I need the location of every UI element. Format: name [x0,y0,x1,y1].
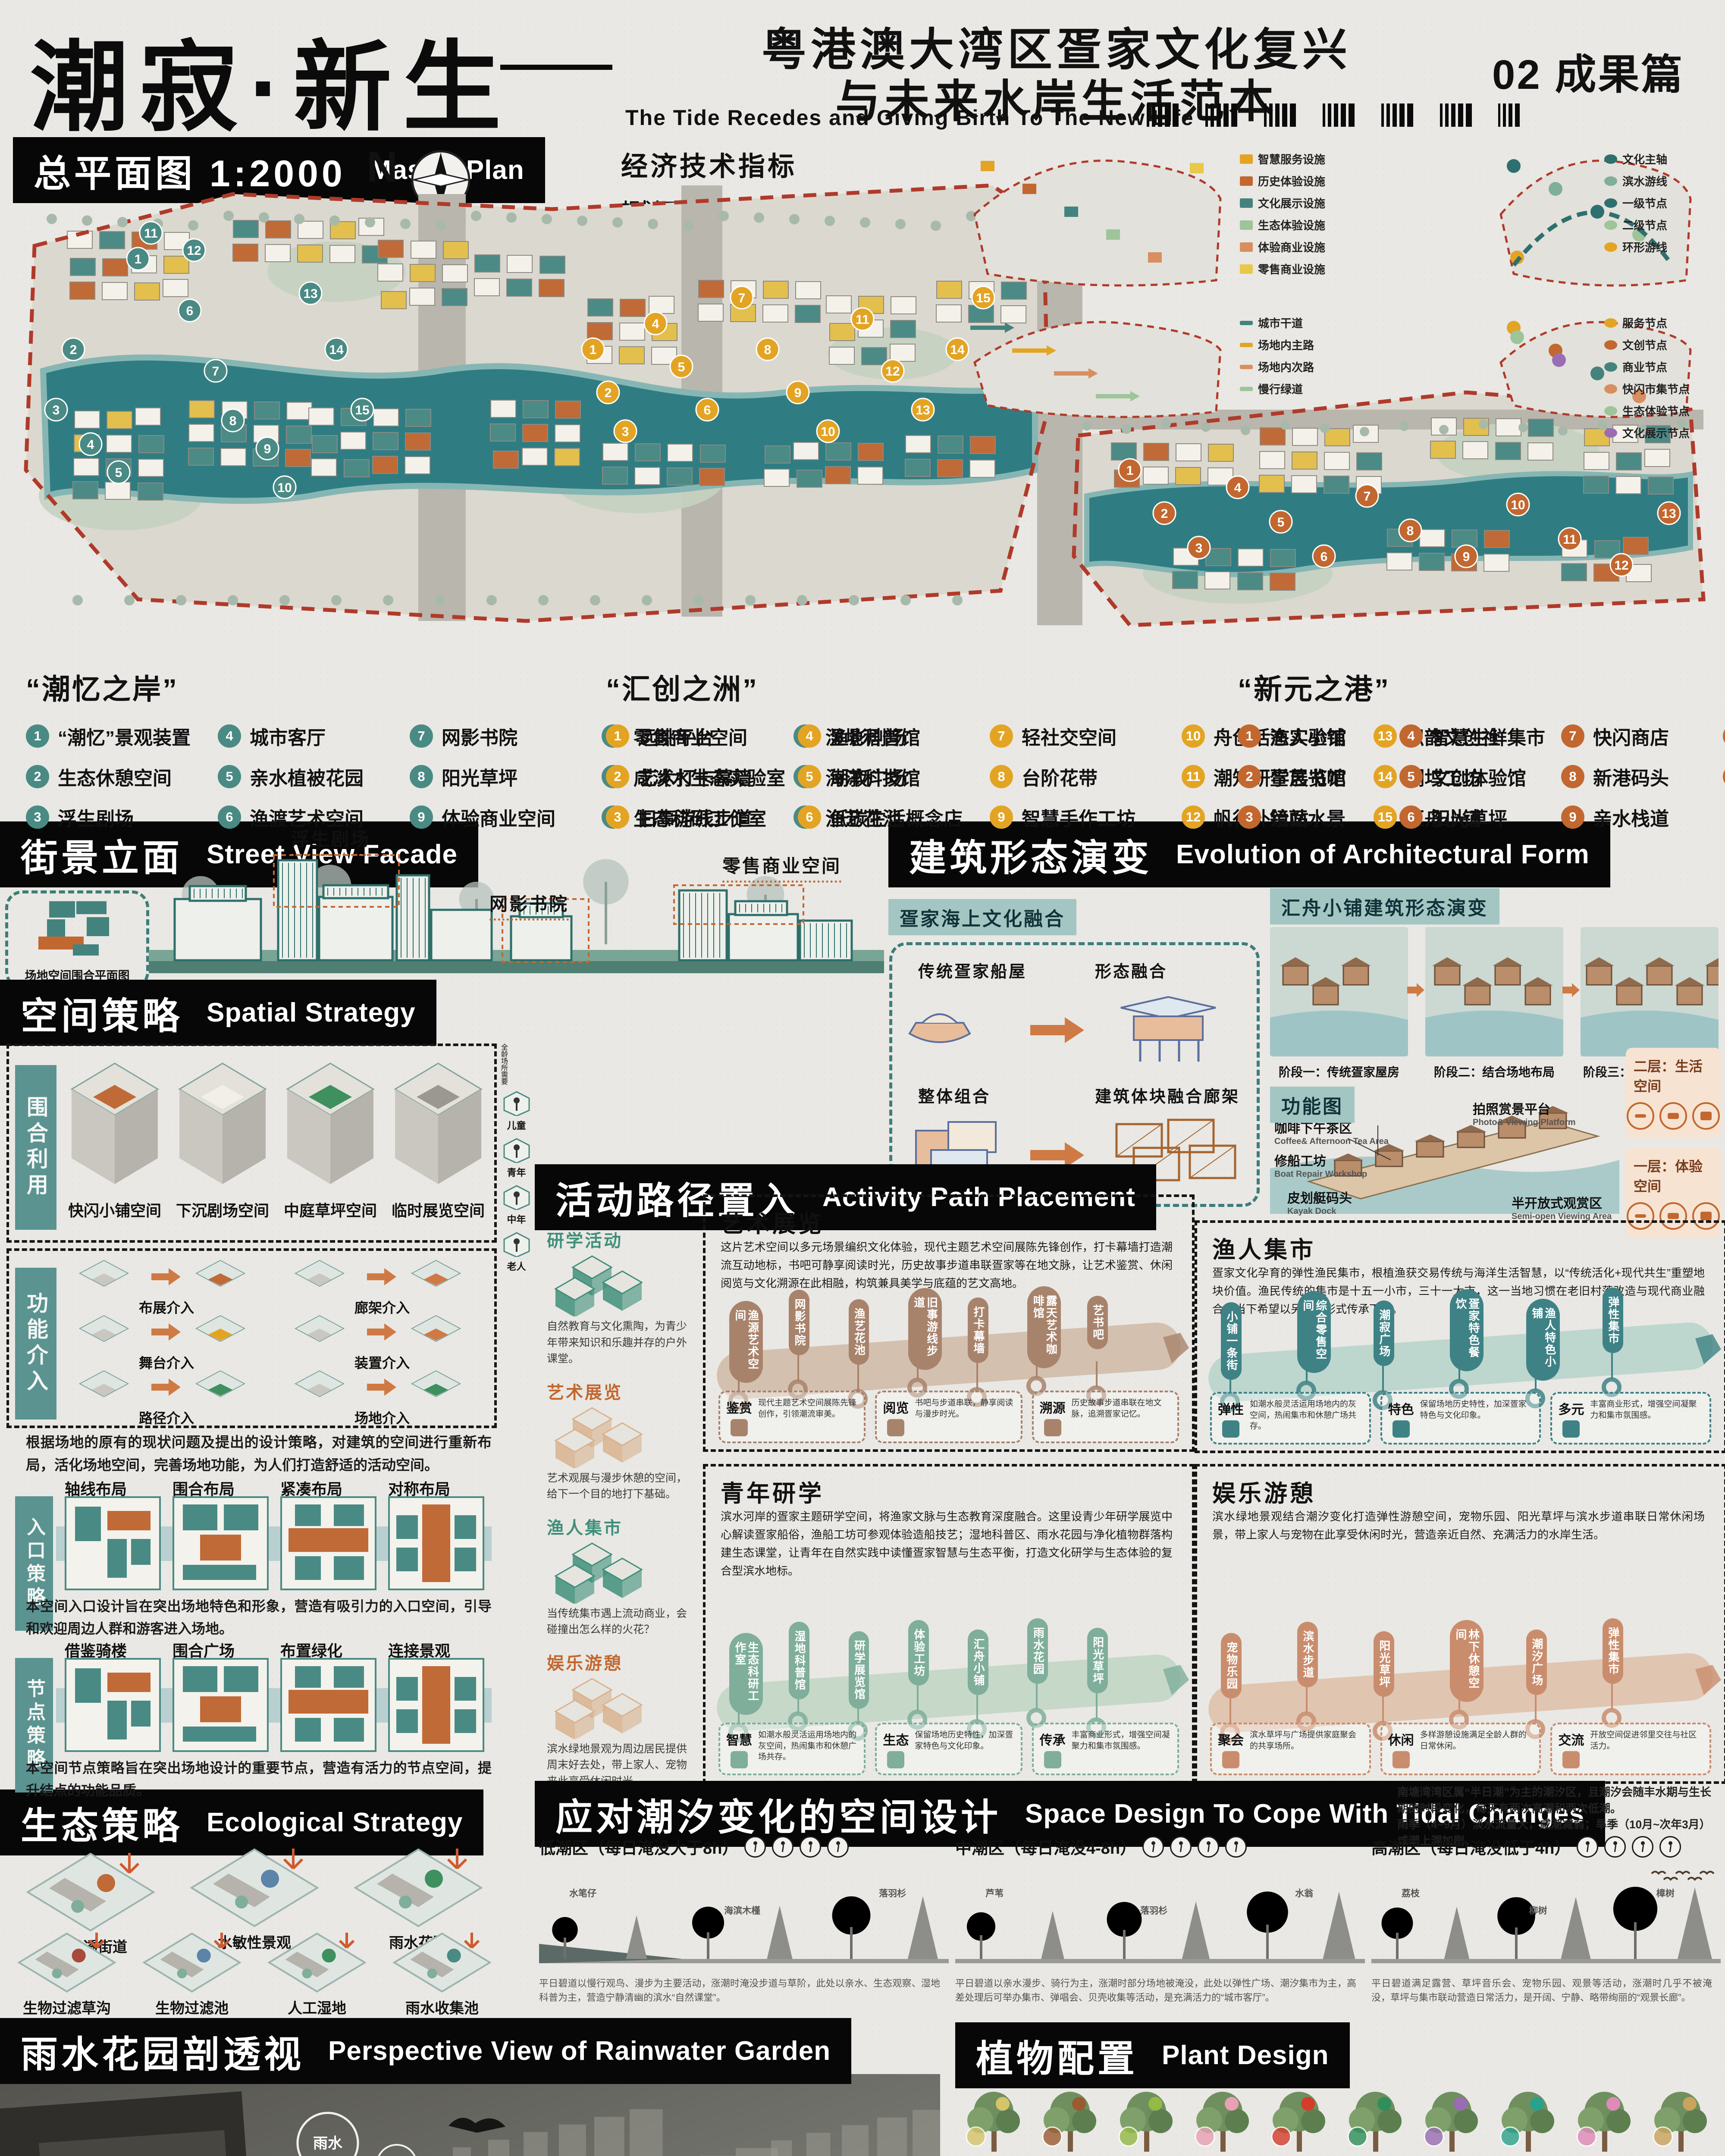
function-caption: 场地介入 [281,1407,483,1427]
legend-number: 5 [218,765,241,788]
activity-sidebar-item: 渔人集市当传统集市遇上流动商业，会碰撞出怎么样的火花？ [547,1514,696,1638]
activity-badge-icon [1393,1420,1410,1438]
tidal-zone-header: 中潮区（每日淹没4-8h） [955,1835,1365,1858]
evolution-floors: 二层：生活空间一层：体验空间 [1626,1048,1721,1248]
minimap-legend-node-analysis: 服务节点文创节点商业节点快闪市集节点生态体验节点文化展示节点 [1604,315,1690,447]
activity-badge-left: 休闲 [1388,1730,1414,1768]
facade-plan-drawing [8,893,146,962]
tidal-tree-label: 落羽杉 [1140,1904,1167,1917]
age-group-label: 老人 [498,1259,535,1273]
svg-text:4: 4 [652,317,659,331]
legend-entry-label: 快闪商店 [1593,722,1669,750]
activity-pill: 弹性集市 [1603,1288,1623,1353]
enclosure-diagram: 中庭草坪空间 [281,1059,380,1221]
activity-pill: 滨水步道 [1297,1622,1318,1687]
barcode-bar [1440,103,1443,127]
activity-badge-desc: 丰富商业形式，增强空间凝聚力和集市氛围感。 [1590,1399,1703,1421]
callout-en: Kayak Dock [1287,1206,1352,1216]
legend-item: 生态体验节点 [1604,403,1690,419]
activity-badge-name: 阅览 [883,1398,909,1416]
legend-entry: 8阳光草坪 [410,763,602,790]
legend-entry: 3浮生剧场 [26,803,218,831]
evolution-callout: 半开放式观赏区Semi-open Viewing Area [1512,1193,1612,1222]
floor-icon [1659,1102,1687,1130]
zone-title: “汇创之洲” [606,666,1184,708]
plant-tree-columns: 海滨木槿叶片：1月-12月叶片全落花期：7月初-10月初水分：耐海水漫淹落羽杉叶… [955,2085,1721,2156]
activity-type-icon [1170,1836,1192,1858]
strategy-diagram [388,1658,484,1752]
zone-items: 1渔人小铺2疍艺书吧3镜面水景4智慧生鲜集市5文创体验馆6阳光草坪7快闪商店8新… [1238,722,1721,869]
barcode-bar [1211,103,1214,127]
enclosure-diagram: 下沉剧场空间 [173,1059,272,1221]
svg-text:1: 1 [135,252,142,266]
legend-entry-label: 渔人小铺 [1270,722,1345,750]
activity-badge: 特色保留场地历史特性，加深疍家特色与文化印象。 [1380,1392,1541,1445]
activity-pill: 艺书吧 [1087,1296,1108,1349]
tidal-tree-label: 水翁 [1295,1887,1313,1899]
activity-badge-desc: 如潮水般灵活运用场地内的灰空间，热闹集市和休憩广场共存。 [758,1730,858,1763]
legend-item: 快闪市集节点 [1604,381,1690,397]
evolution-callout: 皮划艇码头Kayak Dock [1287,1188,1352,1216]
activity-type-icon [827,1836,849,1858]
legend-item: 文化展示节点 [1604,425,1690,441]
plants-badge: 植物配置 Plant Design [955,2022,1350,2088]
activity-panel-1: 艺术展览这片艺术空间以多元场景编织文化体验，现代主题艺术空间展陈先锋创作，打卡幕… [703,1194,1195,1452]
evolution-row-label: 传统疍家船屋 [918,958,1027,982]
ecology-caption: 雨水收集池 [392,1996,492,2018]
ecology-diagram-4: 生物过滤草沟 [17,1932,116,2018]
tidal-zone-name: 高潮区（每日淹没低于4h） [1371,1835,1571,1858]
zone-title: “新元之港” [1238,666,1721,708]
function-diagram: 廊架介入 [281,1259,483,1317]
activity-panel-2: 渔人集市疍家文化孕育的弹性渔民集市，根植渔获交易传统与海洋生活智慧，以“传统活化… [1195,1220,1725,1453]
activity-badge-desc: 如潮水般灵活运用场地内的灰空间，热闹集市和休憩广场共存。 [1250,1399,1363,1432]
legend-entry-label: 渔影剧场 [830,722,906,750]
svg-text:2: 2 [1161,507,1168,521]
activity-badge-left: 交流 [1558,1730,1584,1768]
tidal-zone-caption: 平日碧道以亲水漫步、骑行为主，涨潮时部分场地被淹没，此处以弹性广场、潮汐集市为主… [955,1976,1356,2005]
legend-label: 快闪市集节点 [1622,381,1690,397]
function-diagram: 舞台介入 [65,1314,268,1372]
barcode-bar [1407,103,1413,127]
barcode-bar [1205,103,1208,127]
activity-sidebar-label: 研学活动 [547,1227,696,1252]
plant-name: 麻楝 [1659,2154,1701,2156]
legend-entry: 5文创体验馆 [1399,763,1561,790]
legend-label: 场地内主路 [1258,337,1314,353]
age-bar: 全龄场所需要儿童青年中年老人 [498,1044,535,1238]
activity-badge-icon [1562,1420,1580,1438]
callout-cn: 皮划艇码头 [1287,1188,1352,1206]
svg-text:6: 6 [1320,550,1328,564]
enclosure-diagram: 临时展览空间 [389,1059,488,1221]
svg-text:1: 1 [1126,464,1134,478]
legend-entry-label: 体验商业空间 [442,803,555,831]
activity-badge-left: 多元 [1558,1399,1584,1438]
enclosure-caption: 临时展览空间 [389,1198,488,1221]
activity-type-icon [744,1836,766,1858]
svg-text:13: 13 [916,403,930,417]
barcode-bar [1290,103,1296,127]
activity-badge-desc: 开放空间促进邻里交往与社区活力。 [1590,1730,1703,1752]
activity-badge-name: 鉴赏 [726,1398,752,1416]
activity-badge-desc: 滨水草坪与广场提供家庭聚会的共享场所。 [1250,1730,1363,1752]
zone-items: 1“潮忆”景观装置2生态休憩空间3浮生剧场4城市客厅5亲水植被花园6渔渡艺术空间… [26,722,604,869]
raingarden-badge: 雨水花园剖透视 Perspective View of Rainwater Ga… [0,2018,851,2084]
legend-number: 3 [26,805,49,829]
activity-pill: 综合零售空间 [1297,1291,1331,1373]
legend-item: 文化展示设施 [1240,195,1325,211]
legend-entry: 3旧事游线步道 [606,803,798,831]
callout-en: Photo& Viewing Platform [1473,1118,1576,1128]
activity-pill: 宠物乐园 [1221,1633,1242,1698]
activity-badge-icon [1562,1751,1580,1768]
activity-panel-title: 渔人集市 [1212,1231,1316,1265]
legend-number: 2 [1238,765,1261,788]
activity-panel-illustration: 宠物乐园滨水步道阳光草坪林下休憩空间潮汐广场弹性集市 [1208,1639,1713,1725]
floor-icon [1692,1102,1720,1130]
activity-sidebar-label: 渔人集市 [547,1514,696,1539]
legend-label: 商业节点 [1622,359,1667,375]
activity-sidebar-item: 娱乐游憩滨水绿地景观为周边居民提供周末好去处，带上家人、宠物来此享受休闲时光。 [547,1649,696,1790]
raingarden-view: 雨水蓄水观鸟亭滨水陆域生态系统Coastal terrestrial ecosy… [0,2074,940,2156]
activity-badge: 休闲多样游憩设施满足全龄人群的日常休闲。 [1380,1723,1541,1775]
age-group-label: 青年 [498,1165,535,1179]
activity-pill: 体验工坊 [908,1620,929,1686]
activity-badge: 溯源历史故事步道串联在地文脉，追溯疍家记忆。 [1032,1391,1179,1443]
plant-tree-7: 大花紫薇叶片：10月-11月落叶花期：5-7月水分：较为耐旱 [1413,2085,1490,2156]
legend-entry-label: 阳光草坪 [1431,803,1507,831]
ecology-diagram-6: 人工湿地 [267,1932,367,2018]
legend-swatch-icon [1240,264,1253,274]
activity-pill-stem [1036,1352,1038,1378]
legend-number: 12 [1182,805,1205,829]
activity-panel-text: 滨水绿地景观结合潮汐变化打造弹性游憩空间，宠物乐园、阳光草坪与滨水步道串联日常休… [1212,1507,1705,1544]
legend-swatch-icon [1240,387,1253,391]
zone-items: 1远眺平台2艺术打卡幕墙3旧事游线步道4渔影剧场5潮寂广场6低碳生活概念店7轻社… [606,722,1184,869]
floor-icon-glyph [1668,1113,1679,1119]
activity-pill-stem [1229,1368,1231,1394]
activity-panel-text: 这片艺术空间以多元场景编织文化体验，现代主题艺术空间展陈先锋创作，打卡幕墙打造潮… [721,1238,1173,1292]
activity-badge-left: 溯源 [1040,1398,1066,1436]
tidal-zone-caption: 平日碧道以慢行观鸟、漫步为主要活动，涨潮时淹没步道与草阶，此处以亲水、生态观察、… [539,1976,940,2005]
activity-pill-stem [1611,1684,1613,1710]
ecology-caption: 人工湿地 [267,1996,367,2018]
activity-type-icon [1225,1836,1247,1858]
legend-swatch-icon [1604,198,1617,208]
activity-type-icon [1604,1836,1626,1858]
activity-badge-left: 智慧 [726,1730,752,1768]
legend-label: 一级节点 [1622,195,1667,211]
legend-label: 二级节点 [1622,217,1667,233]
activity-pill-stem [738,1366,740,1392]
zone-title: “潮忆之岸” [26,666,604,708]
svg-text:11: 11 [1563,533,1577,547]
minimap-facility-analysis [962,144,1233,300]
legend-swatch-icon [1604,406,1617,416]
plant-tree-9: 宫粉紫荆叶片：2-5月落叶花期：1-3月水分：耐干旱 [1566,2085,1642,2156]
svg-text:7: 7 [1364,489,1371,504]
svg-text:9: 9 [264,442,271,456]
evolution-stage-caption: 阶段二：结合场地布局 [1425,1063,1563,1080]
tidal-tree-label: 芦苇 [985,1887,1004,1899]
activity-badges: 聚会滨水草坪与广场提供家庭聚会的共享场所。休闲多样游憩设施满足全龄人群的日常休闲… [1210,1723,1711,1775]
svg-text:15: 15 [355,403,369,417]
barcode-bar [1498,103,1500,127]
barcode-icon [1138,103,1703,127]
zone-legend-1: “潮忆之岸”1“潮忆”景观装置2生态休憩空间3浮生剧场4城市客厅5亲水植被花园6… [26,666,604,869]
activity-pill-stem [857,1697,859,1723]
legend-entry-label: 亲水植被花园 [250,763,364,790]
plant-tree-6: 王棕叶片：常绿果期：10月水分：耐旱耐湿 [1337,2085,1413,2156]
legend-number: 9 [410,805,433,829]
activity-pill-stem [1458,1686,1460,1711]
legend-entry-label: 低碳生活概念店 [830,803,963,831]
svg-text:3: 3 [53,403,60,417]
evolution-row-label: 整体组合 [918,1083,991,1107]
activity-badge-left: 传承 [1040,1730,1066,1768]
svg-text:9: 9 [1463,550,1470,564]
barcode-bar [1436,103,1437,127]
legend-label: 文化主轴 [1622,151,1667,167]
title-divider [500,65,612,70]
barcode-bar [1399,103,1405,127]
legend-entry-label: 镜面水景 [1270,803,1345,831]
spatial-enclosure-box: 快闪小铺空间下沉剧场空间中庭草坪空间临时展览空间 [6,1044,497,1243]
legend-swatch-icon [1604,340,1617,350]
barcode-bar [1249,103,1257,127]
strategy-diagram [280,1496,376,1590]
legend-swatch-icon [1240,176,1253,186]
tidal-zone-name: 中潮区（每日淹没4-8h） [955,1835,1136,1858]
edition-label: 02 成果篇 [1492,41,1684,101]
legend-entry-label: 新港码头 [1593,763,1669,790]
legend-item: 体验商业设施 [1240,239,1325,255]
plants-badge-cn: 植物配置 [976,2028,1138,2082]
legend-entry: 3镜面水景 [1238,803,1399,831]
legend-swatch-icon [1240,343,1253,347]
barcode-bar [1474,103,1481,127]
legend-entry-label: 亲水栈道 [1593,803,1669,831]
legend-entry: 4城市客厅 [218,722,410,750]
svg-text:2: 2 [605,386,612,400]
activity-pill: 潮寂广场 [1374,1300,1394,1366]
strategy-diagram [172,1496,269,1590]
legend-entry-label: 台阶花带 [1022,763,1098,790]
legend-number: 11 [1182,765,1205,788]
activity-badge-name: 智慧 [726,1730,752,1749]
legend-number: 6 [798,805,821,829]
function-diagram: 场地介入 [281,1369,483,1427]
ecology-badge-en: Ecological Strategy [207,1807,463,1838]
legend-item: 环形游线 [1604,239,1667,255]
activity-badge-left: 阅览 [883,1398,909,1436]
activity-pill-stem [1096,1693,1098,1719]
plant-tree-10: 麻楝叶片：常绿花期：4-5月水分：耐干旱 [1642,2085,1719,2156]
plant-tree-4: 栾树叶片：11月-次年2月落叶花期：6-7月水分：耐干旱 [1184,2085,1261,2156]
activity-badge-name: 弹性 [1218,1399,1244,1418]
svg-text:雨水: 雨水 [313,2135,343,2152]
barcode-bar [1165,103,1170,127]
evolution-floor-badge: 二层：生活空间 [1626,1048,1721,1138]
legend-item: 零售商业设施 [1240,261,1325,277]
activity-badge-left: 聚会 [1218,1730,1244,1768]
activity-badge-desc: 保留场地历史特性，加深疍家特色与文化印象。 [1420,1399,1534,1421]
legend-swatch-icon [1240,154,1253,164]
activity-pill-stem [917,1686,919,1711]
spatial-badge: 空间策略 Spatial Strategy [0,980,436,1046]
zone-legend-2: “汇创之洲”1远眺平台2艺术打卡幕墙3旧事游线步道4渔影剧场5潮寂广场6低碳生活… [606,666,1184,869]
barcode-bar [1275,103,1280,127]
barcode-bar [1138,103,1140,127]
plant-name: 大花紫薇 [1416,2154,1486,2156]
activity-badge: 交流开放空间促进邻里交往与社区活力。 [1550,1723,1711,1775]
barcode-bar [1191,103,1198,127]
ecology-diagram-5: 生物过滤池 [142,1932,241,2018]
floor-icons [1627,1102,1720,1130]
activity-badge-desc: 现代主题艺术空间展陈先锋创作，引领潮流审美。 [758,1398,858,1420]
svg-text:14: 14 [329,343,344,357]
legend-number: 9 [1561,805,1584,829]
barcode-bar [1269,103,1273,127]
activity-pill-stem [917,1354,919,1379]
legend-entry-label: 城市客厅 [250,722,326,750]
svg-text:5: 5 [1277,515,1285,530]
minimap-legend-traffic-analysis: 城市干道场地内主路场地内次路慢行绿道 [1240,315,1314,403]
svg-text:3: 3 [1195,541,1203,555]
plants-badge-en: Plant Design [1162,2040,1329,2071]
svg-text:8: 8 [1407,524,1414,538]
strategy-diagram [65,1658,161,1752]
barcode-bar [1142,103,1144,127]
function-diagram: 路径介入 [65,1369,268,1427]
legend-entry: 9智慧手作工坊 [990,803,1182,831]
activity-type-icon [772,1836,793,1858]
barcode-bar [1318,103,1320,127]
barcode-bar [1223,103,1229,127]
legend-number: 10 [1182,724,1205,748]
legend-item: 一级节点 [1604,195,1667,211]
legend-swatch-icon [1604,318,1617,328]
legend-entry: 1远眺平台 [606,722,798,750]
legend-entry-label: 轻社交空间 [1022,722,1117,750]
legend-item: 生态体验设施 [1240,217,1325,233]
evolution-stage: 阶段二：结合场地布局 [1425,927,1563,1080]
activity-pill-stem [1611,1353,1613,1379]
legend-label: 场地内次路 [1258,359,1314,375]
tidal-zone-1: 低潮区（每日淹没大于8h）水笔仔海滨木槿落羽杉平日碧道以慢行观鸟、漫步为主要活动… [539,1835,949,2005]
activity-pill-stem [1458,1355,1460,1381]
activity-badge: 传承丰富商业形式，增强空间凝聚力和集市氛围感。 [1032,1723,1179,1775]
activity-sidebar-item: 研学活动自然教育与文化熏陶，为青少年带来知识和乐趣并存的户外课堂。 [547,1227,696,1367]
legend-label: 生态体验节点 [1622,403,1690,419]
plant-tree-1: 海滨木槿叶片：1月-12月叶片全落花期：7月初-10月初水分：耐海水漫淹 [955,2085,1032,2156]
function-caption: 路径介入 [65,1407,268,1427]
legend-swatch-icon [1240,198,1253,208]
legend-number: 6 [218,805,241,829]
svg-text:3: 3 [622,425,629,439]
svg-text:5: 5 [115,466,122,480]
tidal-tree-label: 柳树 [1529,1904,1547,1917]
svg-text:12: 12 [885,364,900,379]
legend-label: 智慧服务设施 [1258,151,1325,167]
legend-swatch-icon [1604,220,1617,230]
page-title: 潮寂·新生 [30,8,512,150]
activity-panel-illustration: 小铺一条街综合零售空间潮寂广场疍家特色餐饮渔人特色小铺弹性集市 [1208,1308,1713,1395]
tidal-zone-3: 高潮区（每日淹没低于4h）荔枝柳树樟树平日碧道满足露营、草坪音乐会、宠物乐园、观… [1371,1835,1721,2005]
strategy-diagram [280,1658,376,1752]
ecology-diagram-7: 雨水收集池 [392,1932,492,2018]
activity-sidebar-label: 艺术展览 [547,1379,696,1404]
legend-swatch-icon [1240,365,1253,369]
tidal-zone-header: 低潮区（每日淹没大于8h） [539,1835,949,1858]
spatial-mid-text: 根据场地的原有的现状问题及提出的设计策略，对建筑的空间进行重新布局，活化场地空间… [26,1431,492,1477]
activity-badge: 聚会滨水草坪与广场提供家庭聚会的共享场所。 [1210,1723,1371,1775]
activity-pill-stem [797,1687,799,1713]
zone-legend-3: “新元之港”1渔人小铺2疍艺书吧3镜面水景4智慧生鲜集市5文创体验馆6阳光草坪7… [1238,666,1721,869]
legend-number: 8 [1561,765,1584,788]
legend-number: 8 [990,765,1013,788]
legend-item: 商业节点 [1604,359,1690,375]
legend-number: 1 [26,724,49,748]
plant-tree-8: 蒲桃叶片：常绿花期：4-6月水分：喜水湿 [1490,2085,1566,2156]
floor-label: 二层：生活空间 [1634,1056,1713,1095]
activity-pill: 渔人特色小铺 [1526,1299,1560,1381]
legend-entry: 1渔人小铺 [1238,722,1399,750]
legend-number: 5 [798,765,821,788]
activity-badge-desc: 历史故事步道串联在地文脉，追溯疍家记忆。 [1072,1398,1171,1420]
evolution-chip-right: 汇舟小铺建筑形态演变 [1270,888,1499,924]
activity-badge-icon [1222,1751,1239,1768]
floor-icon-glyph [1635,1114,1646,1118]
activity-path-strip [715,1321,1182,1401]
activity-sidebar-item: 艺术展览艺术观展与漫步休憩的空间，给下一个目的地打下基础。 [547,1379,696,1503]
activity-pill: 渔源艺术空间 [729,1301,763,1383]
activity-type-icon [1659,1836,1681,1858]
age-group: 青年 [498,1138,535,1179]
svg-text:10: 10 [1511,498,1525,512]
barcode-bar [1298,103,1305,127]
activity-badge-left: 弹性 [1218,1399,1244,1438]
svg-text:6: 6 [186,304,194,318]
svg-text:2: 2 [70,343,77,357]
svg-text:4: 4 [1234,481,1242,495]
activity-pill: 雨水花园 [1027,1618,1048,1684]
svg-text:8: 8 [229,414,237,428]
legend-number: 7 [1561,724,1584,748]
legend-swatch-icon [1604,384,1617,394]
minimap-structure-analysis [1488,144,1703,300]
activity-pill: 林下休憩空间 [1450,1620,1483,1702]
activity-badge-left: 生态 [883,1730,909,1768]
svg-text:11: 11 [144,226,158,241]
svg-text:4: 4 [87,438,94,452]
activity-pill-stem [1535,1364,1537,1390]
activity-badge-icon [887,1419,904,1436]
activity-pill-stem [1382,1366,1384,1392]
legend-entry-label: 浮生剧场 [58,803,134,831]
tidal-badge-cn: 应对潮汐变化的空间设计 [555,1787,1001,1841]
subtitle-en: The Tide Recedes and Giving Birth To The… [625,105,1194,130]
legend-label: 零售商业设施 [1258,261,1325,277]
evolution-chip-func: 功能图 [1270,1087,1355,1123]
activity-panel-text: 滨水河岸的疍家主题研学空间，将渔家文脉与生态教育深度融合。这里设青少年研学展览中… [721,1507,1173,1580]
activity-panel-title: 艺术展览 [721,1205,824,1239]
barcode-bar [1147,103,1149,127]
legend-swatch-icon [1604,176,1617,186]
activity-panel-title: 娱乐游憩 [1212,1474,1316,1508]
function-diagram: 布展介入 [65,1259,268,1317]
